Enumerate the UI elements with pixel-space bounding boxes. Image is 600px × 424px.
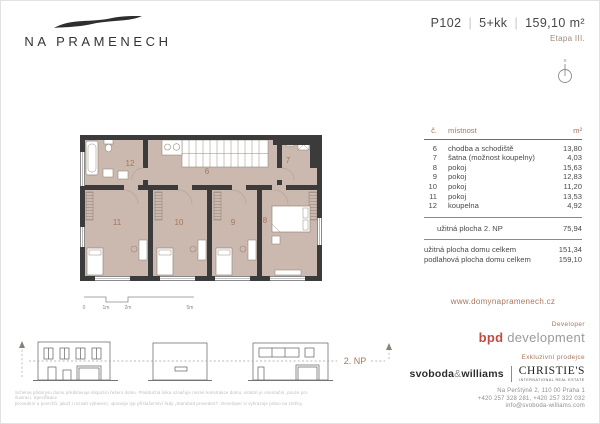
room-number-7: 7 bbox=[286, 156, 291, 165]
north-compass-icon: S bbox=[551, 56, 579, 88]
row-room: pokoj bbox=[437, 182, 552, 192]
brand-name: NA PRAMENECH bbox=[23, 34, 173, 49]
unit-area: 159,10 m² bbox=[525, 16, 585, 30]
scale-0: 0 bbox=[83, 305, 86, 311]
bpd-logo-text2: development bbox=[507, 330, 585, 345]
christies-wordmark: CHRISTIE'S bbox=[519, 365, 585, 377]
room-number-8: 8 bbox=[263, 216, 268, 225]
row-room: šatna (možnost koupelny) bbox=[437, 153, 552, 163]
total-value: 159,10 bbox=[552, 255, 582, 265]
sw-part2: williams bbox=[461, 368, 503, 380]
brand-logo: NA PRAMENECH bbox=[23, 14, 173, 49]
staircase bbox=[182, 140, 268, 167]
total-label: podlahová plocha domu celkem bbox=[424, 255, 552, 265]
room-number-6: 6 bbox=[205, 167, 210, 176]
row-room: koupelna bbox=[437, 201, 552, 211]
row-number: 10 bbox=[424, 182, 437, 192]
subtotal-value: 75,94 bbox=[552, 224, 582, 234]
table-row: 10 pokoj 11,20 bbox=[424, 182, 582, 192]
footer-branding: Developer bpd development Exkluzivní pro… bbox=[410, 321, 585, 411]
contact-address: Na Perštýně 2, 110 00 Praha 1 bbox=[410, 388, 585, 396]
row-room: pokoj bbox=[437, 192, 552, 202]
unit-header: P102|5+kk|159,10 m² Etapa III. bbox=[431, 16, 585, 43]
disclaimer-line1: Schéma půdorysu domu představuje dispozi… bbox=[15, 390, 317, 401]
room-number-9: 9 bbox=[231, 218, 236, 227]
table-row: 9 pokoj 12,83 bbox=[424, 172, 582, 182]
svoboda-williams-logo: svoboda&williams bbox=[410, 368, 504, 380]
header-number: č. bbox=[424, 126, 437, 136]
website-link: www.domynapramenech.cz bbox=[424, 297, 582, 306]
row-area: 4,03 bbox=[552, 153, 582, 163]
christies-logo: CHRISTIE'S INTERNATIONAL REAL ESTATE bbox=[519, 365, 585, 382]
row-number: 11 bbox=[424, 192, 437, 202]
contact-phones: +420 257 328 281, +420 257 322 032 bbox=[410, 396, 585, 404]
disclaimer-line2: provedení a povrchů, jakož i rozsah vyba… bbox=[15, 401, 317, 406]
row-room: pokoj bbox=[437, 163, 552, 173]
separator: | bbox=[507, 16, 525, 30]
logo-divider bbox=[511, 366, 512, 382]
total-value: 151,34 bbox=[552, 245, 582, 255]
subtotal-label: užitná plocha 2. NP bbox=[437, 224, 552, 234]
row-room: chodba a schodiště bbox=[437, 144, 552, 154]
floor-plan: 12 6 7 11 10 9 8 bbox=[76, 128, 328, 288]
unit-code: P102 bbox=[431, 16, 462, 30]
building-elevations: 2. NP bbox=[15, 325, 400, 397]
subtotal-row: užitná plocha 2. NP 75,94 bbox=[424, 217, 582, 240]
scale-1m: 1m bbox=[103, 305, 110, 311]
compass-north-letter: S bbox=[563, 58, 566, 63]
developer-logo: bpd development bbox=[410, 330, 585, 345]
row-number: 7 bbox=[424, 153, 437, 163]
table-row: 11 pokoj 13,53 bbox=[424, 192, 582, 202]
contact-email: info@svoboda-williams.com bbox=[410, 403, 585, 411]
table-row: 12 koupelna 4,92 bbox=[424, 201, 582, 211]
table-header: č. místnost m² bbox=[424, 126, 582, 140]
scale-5m: 5m bbox=[187, 305, 194, 311]
sw-part1: svoboda bbox=[410, 368, 455, 380]
up-arrow-icon bbox=[19, 341, 25, 348]
scale-2m: 2m bbox=[125, 305, 132, 311]
row-area: 13,80 bbox=[552, 144, 582, 154]
row-area: 15,63 bbox=[552, 163, 582, 173]
sink-unit bbox=[162, 140, 182, 155]
agency-logos: svoboda&williams CHRISTIE'S INTERNATIONA… bbox=[410, 365, 585, 382]
row-number: 6 bbox=[424, 144, 437, 154]
unit-stage: Etapa III. bbox=[431, 34, 585, 43]
scale-bar: 0 1m 2m 5m bbox=[76, 292, 206, 314]
room-number-10: 10 bbox=[175, 218, 184, 227]
floor-level-label: 2. NP bbox=[344, 356, 367, 366]
header-area: m² bbox=[552, 126, 582, 136]
separator: | bbox=[461, 16, 479, 30]
table-row: 6 chodba a schodiště 13,80 bbox=[424, 144, 582, 154]
row-number: 8 bbox=[424, 163, 437, 173]
table-row: 7 šatna (možnost koupelny) 4,03 bbox=[424, 153, 582, 163]
unit-title: P102|5+kk|159,10 m² bbox=[431, 16, 585, 30]
table-row: 8 pokoj 15,63 bbox=[424, 163, 582, 173]
brochure-page: NA PRAMENECH P102|5+kk|159,10 m² Etapa I… bbox=[0, 0, 600, 424]
bathtub bbox=[86, 141, 98, 175]
room-table: č. místnost m² 6 chodba a schodiště 13,8… bbox=[424, 126, 582, 265]
up-arrow-icon bbox=[386, 343, 392, 350]
row-area: 4,92 bbox=[552, 201, 582, 211]
row-area: 12,83 bbox=[552, 172, 582, 182]
totals-block: užitná plocha domu celkem 151,34 podlaho… bbox=[424, 239, 582, 264]
row-area: 11,20 bbox=[552, 182, 582, 192]
contact-info: Na Perštýně 2, 110 00 Praha 1 +420 257 3… bbox=[410, 388, 585, 411]
total-row: užitná plocha domu celkem 151,34 bbox=[424, 245, 582, 255]
row-area: 13,53 bbox=[552, 192, 582, 202]
elevation-rear bbox=[248, 343, 333, 380]
total-label: užitná plocha domu celkem bbox=[424, 245, 552, 255]
room-number-12: 12 bbox=[126, 159, 135, 168]
bpd-logo-text: bpd bbox=[479, 330, 504, 345]
total-row: podlahová plocha domu celkem 159,10 bbox=[424, 255, 582, 265]
row-number: 12 bbox=[424, 201, 437, 211]
seller-label: Exkluzivní prodejce bbox=[410, 354, 585, 361]
row-room: pokoj bbox=[437, 172, 552, 182]
unit-disposition: 5+kk bbox=[479, 16, 507, 30]
header-room: místnost bbox=[437, 126, 552, 136]
developer-label: Developer bbox=[410, 321, 585, 328]
swoosh-icon bbox=[50, 14, 146, 30]
row-number: 9 bbox=[424, 172, 437, 182]
disclaimer-text: Schéma půdorysu domu představuje dispozi… bbox=[15, 390, 317, 406]
table-body: 6 chodba a schodiště 13,80 7 šatna (možn… bbox=[424, 144, 582, 211]
elevation-side bbox=[148, 343, 212, 380]
room-number-11: 11 bbox=[113, 218, 122, 227]
christies-subtitle: INTERNATIONAL REAL ESTATE bbox=[519, 378, 585, 382]
